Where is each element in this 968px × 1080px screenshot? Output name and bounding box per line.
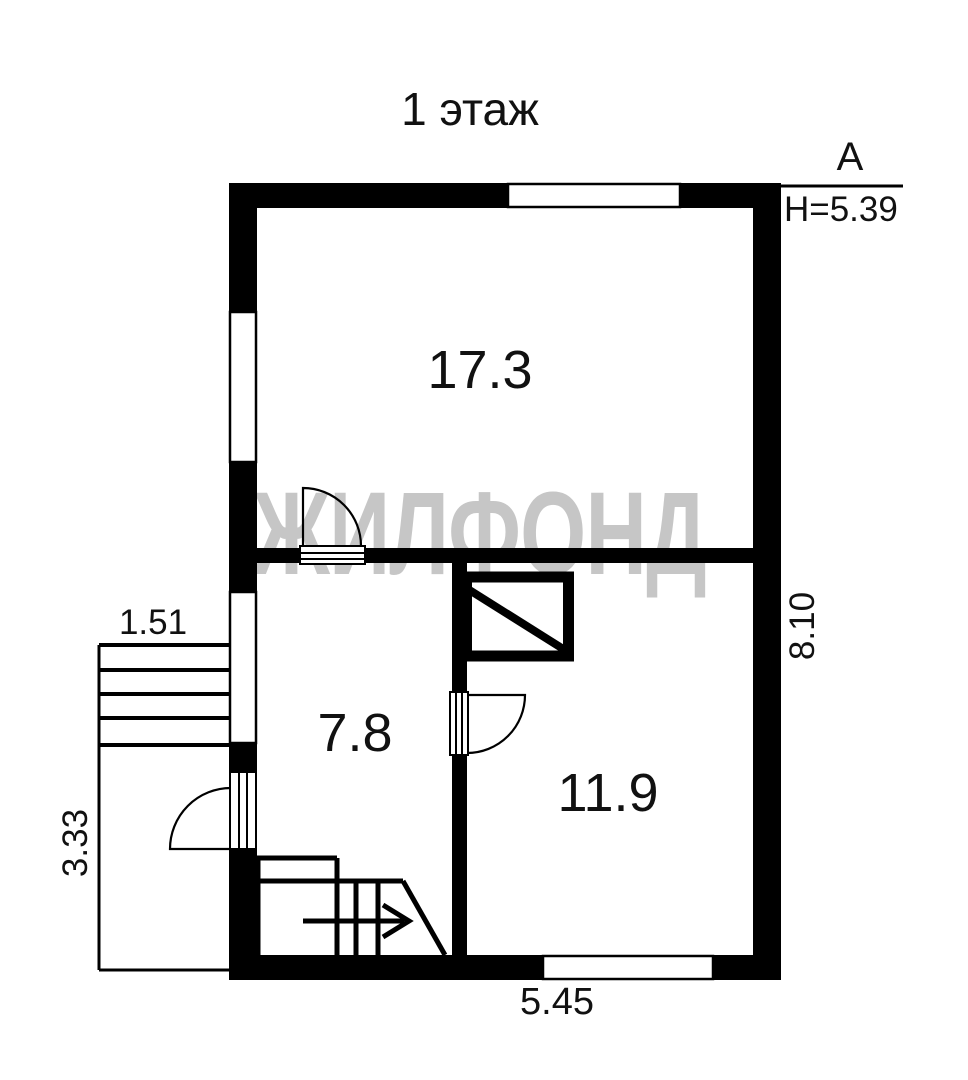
floor-plan-canvas: 1 этаж ЖИЛФОНД — [0, 0, 968, 1080]
dimension-porch-depth: 3.33 — [58, 783, 98, 903]
dimension-right-height: 8.10 — [785, 566, 825, 686]
dimension-porch-width: 1.51 — [93, 605, 213, 640]
labels-layer: 17.3 7.8 11.9 5.45 8.10 1.51 3.33 А H=5.… — [0, 0, 968, 1080]
room-area-label: 7.8 — [280, 706, 430, 760]
axis-height-mark: H=5.39 — [784, 192, 898, 227]
room-area-label: 17.3 — [400, 343, 560, 397]
room-area-label: 11.9 — [528, 766, 688, 820]
axis-letter: А — [820, 137, 880, 177]
dimension-bottom-width: 5.45 — [487, 983, 627, 1021]
